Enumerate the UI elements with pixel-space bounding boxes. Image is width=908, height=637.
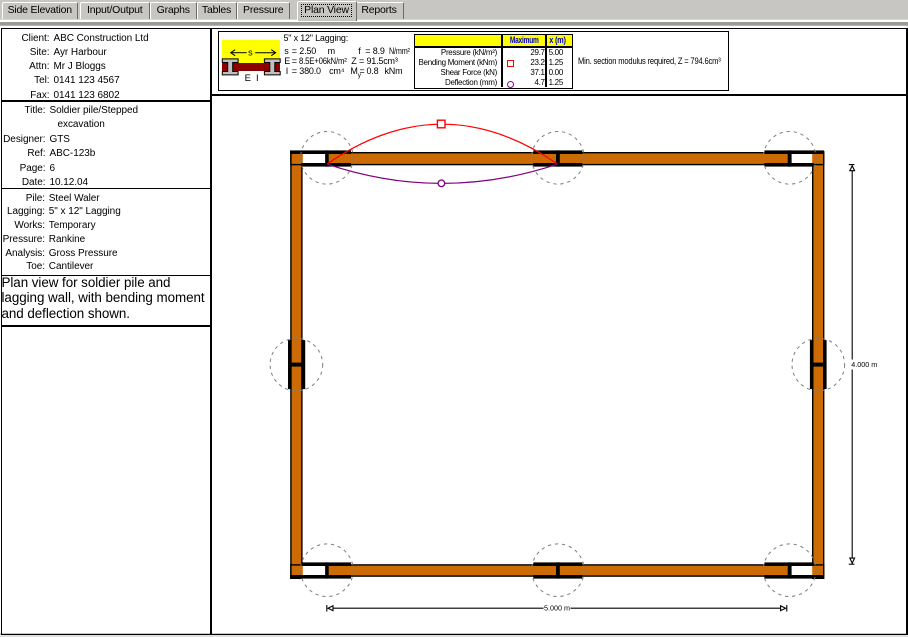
svg-text:4.000 m: 4.000 m xyxy=(851,360,877,369)
svg-text:5.000 m: 5.000 m xyxy=(544,604,570,613)
